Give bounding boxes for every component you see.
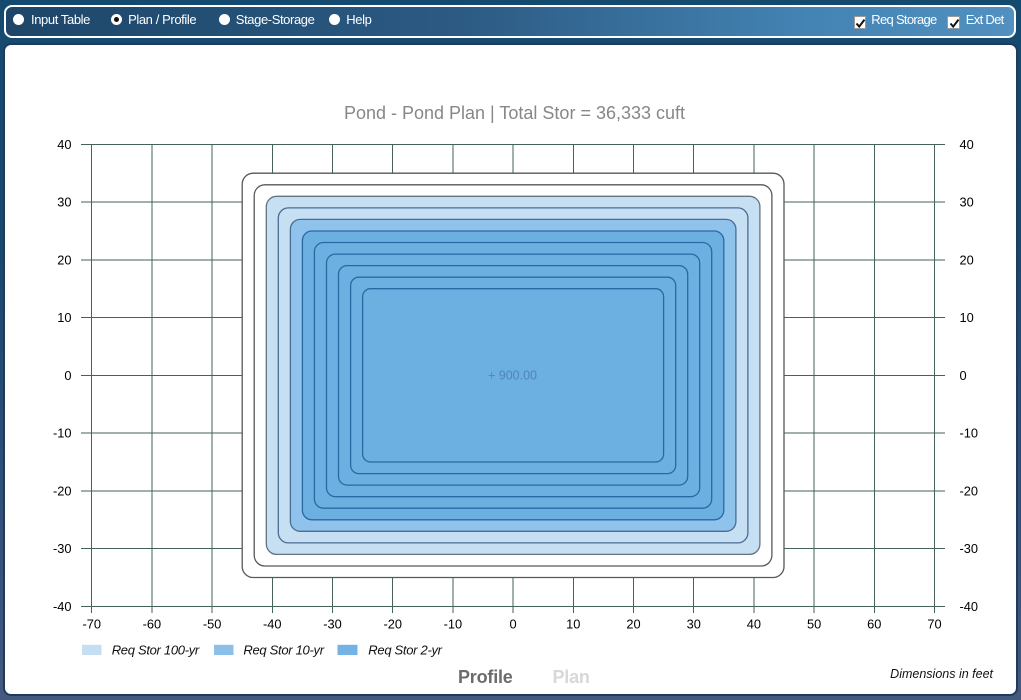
svg-text:40: 40 (960, 137, 974, 152)
svg-text:20: 20 (626, 617, 640, 632)
svg-text:30: 30 (687, 617, 701, 632)
svg-text:-30: -30 (323, 617, 342, 632)
svg-text:Req Stor 100-yr: Req Stor 100-yr (112, 642, 200, 657)
svg-text:-30: -30 (53, 541, 72, 556)
svg-text:70: 70 (927, 617, 941, 632)
svg-text:Req Stor 2-yr: Req Stor 2-yr (368, 642, 442, 657)
svg-text:30: 30 (57, 195, 71, 210)
svg-text:0: 0 (510, 617, 517, 632)
svg-text:20: 20 (57, 252, 71, 267)
svg-text:30: 30 (960, 195, 974, 210)
svg-text:10: 10 (566, 617, 580, 632)
svg-text:50: 50 (807, 617, 821, 632)
svg-text:10: 10 (57, 310, 71, 325)
svg-text:40: 40 (747, 617, 761, 632)
svg-text:40: 40 (57, 137, 71, 152)
svg-text:10: 10 (960, 310, 974, 325)
svg-text:-10: -10 (53, 426, 72, 441)
svg-text:-10: -10 (960, 426, 979, 441)
svg-text:20: 20 (960, 252, 974, 267)
svg-text:-40: -40 (263, 617, 282, 632)
svg-text:60: 60 (867, 617, 881, 632)
svg-text:+ 900.00: + 900.00 (488, 369, 537, 383)
svg-text:-70: -70 (82, 617, 101, 632)
svg-text:-20: -20 (53, 484, 72, 499)
svg-text:0: 0 (960, 368, 967, 383)
svg-text:-30: -30 (960, 541, 979, 556)
svg-text:-50: -50 (203, 617, 222, 632)
svg-text:0: 0 (64, 368, 71, 383)
svg-text:-60: -60 (143, 617, 162, 632)
svg-text:-40: -40 (960, 599, 979, 614)
svg-text:-40: -40 (53, 599, 72, 614)
svg-text:Req Stor 10-yr: Req Stor 10-yr (243, 642, 324, 657)
svg-text:-20: -20 (383, 617, 402, 632)
svg-text:-20: -20 (960, 484, 979, 499)
svg-text:-10: -10 (444, 617, 463, 632)
